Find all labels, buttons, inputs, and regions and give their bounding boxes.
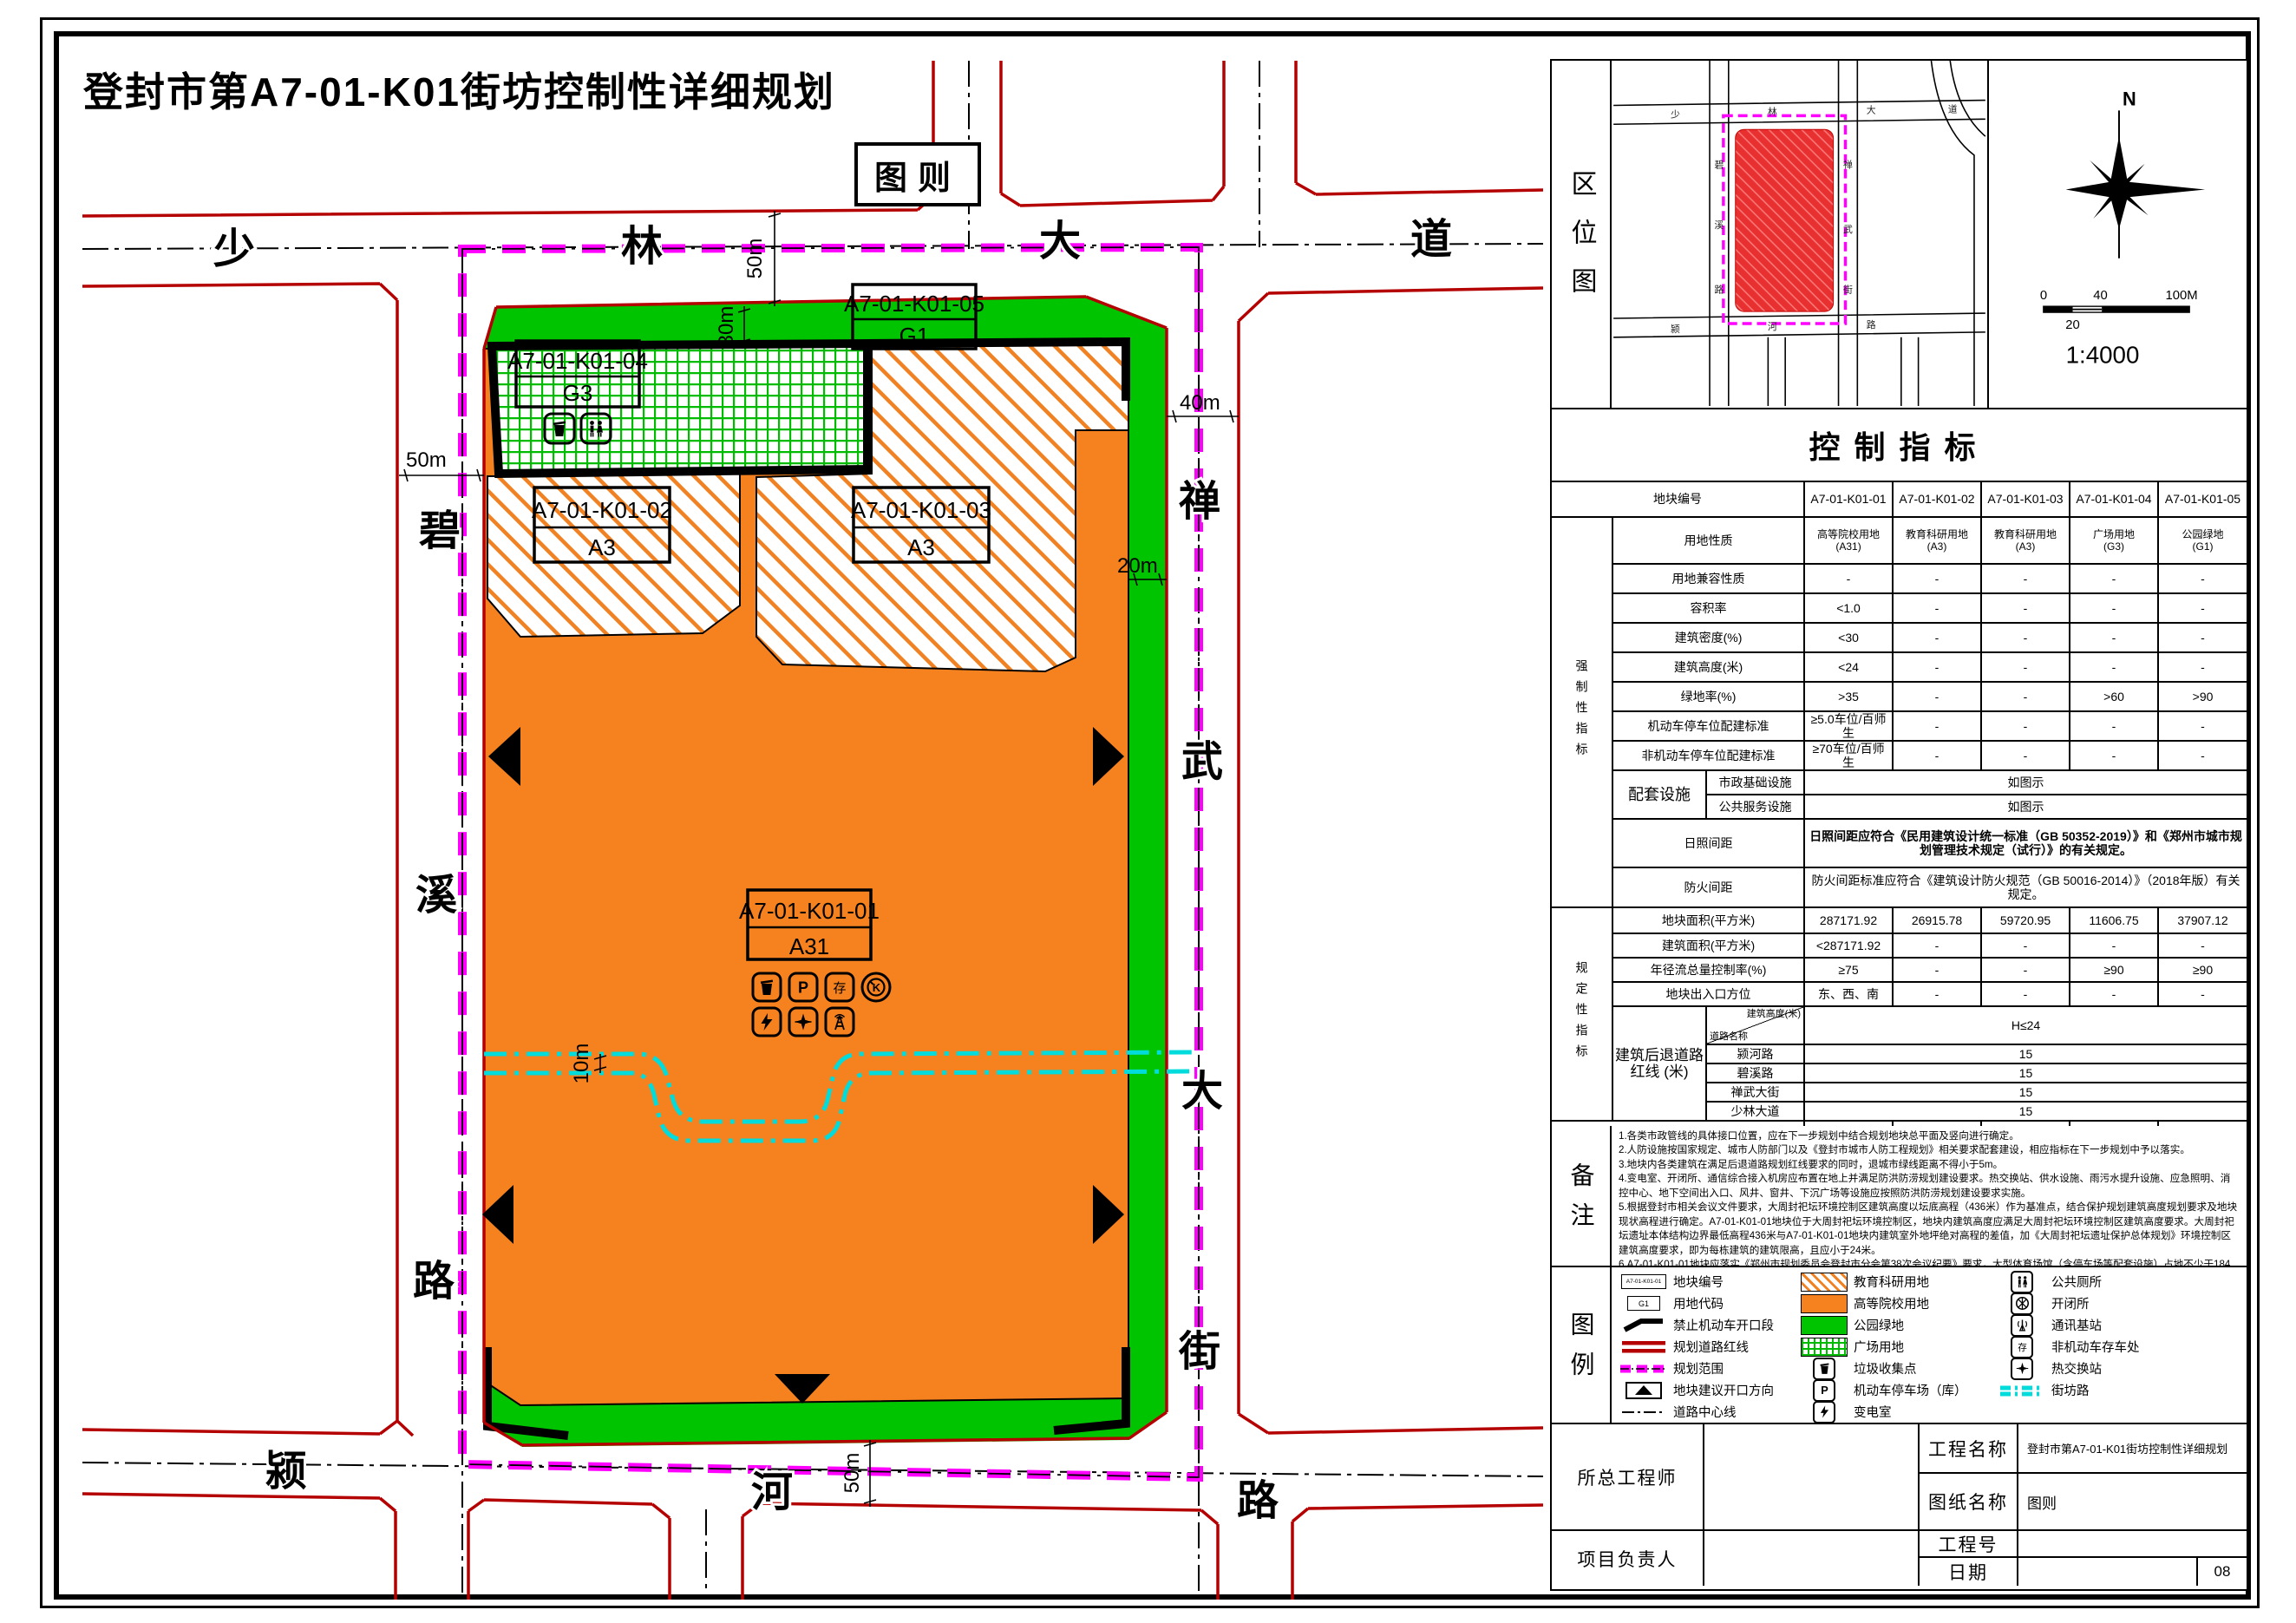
north-letter: N	[2123, 88, 2136, 109]
park-land-swatch	[1801, 1316, 1848, 1335]
legend-centerline: 道路中心线	[1620, 1401, 1801, 1423]
plot-code: A7-01-K01-01	[1804, 482, 1893, 517]
switch-station-icon	[2011, 1293, 2033, 1315]
dim-50m-top: 50m	[743, 239, 767, 279]
trash-collection-icon	[1813, 1358, 1835, 1380]
note-item: 5.根据登封市相关会议文件要求，大周封祀坛环境控制区建筑高度以坛底高程（436米…	[1619, 1201, 2240, 1258]
svg-text:溪: 溪	[1714, 219, 1724, 231]
chief-engineer-signature	[1704, 1424, 1920, 1531]
legend-heat-exchange: 热交换站	[1998, 1358, 2247, 1379]
note-item: 4.变电室、开闭所、通信综合接入机房应布置在地上并满足防洪防涝规划建设要求。热交…	[1619, 1172, 2240, 1201]
plot-04-use: G3	[563, 380, 593, 406]
svg-text:大: 大	[1867, 103, 1876, 115]
note-item: 2.人防设施按国家规定、城市人防部门以及《登封市城市人防工程规划》相关要求配套建…	[1619, 1143, 2240, 1157]
project-lead-signature	[1704, 1531, 1920, 1586]
road-north-char: 大	[1039, 219, 1081, 265]
notes-body: 1.各类市政管线的具体接口位置，应在下一步规划中结合规划地块总平面及竖向进行确定…	[1612, 1126, 2247, 1266]
group-prescriptive: 规定性指标	[1552, 907, 1612, 1121]
plaza-land-swatch	[1801, 1338, 1848, 1357]
note-item: 3.地块内各类建筑在满足后退道路规划红线要求的同时，退城市绿线距离不得小于5m。	[1619, 1158, 2240, 1172]
bike-storage-icon	[2011, 1336, 2033, 1358]
row-far: 容积率 <1.0----	[1552, 593, 2247, 623]
road-north-char: 林	[621, 224, 663, 270]
opening-dir-swatch	[1626, 1382, 1662, 1399]
chief-engineer-label: 所总工程师	[1552, 1424, 1704, 1531]
svg-text:路: 路	[1867, 319, 1876, 330]
road-south-char: 河	[751, 1469, 793, 1515]
university-land-swatch	[1801, 1294, 1848, 1313]
note-item: 1.各类市政管线的具体接口位置，应在下一步规划中结合规划地块总平面及竖向进行确定…	[1619, 1129, 2240, 1143]
location-side: N 0 40 100M 20 1:4000	[1989, 61, 2247, 408]
sheet-name-value: 图则	[2018, 1474, 2247, 1531]
row-compat: 用地兼容性质 -----	[1552, 564, 2247, 593]
svg-text:河: 河	[1768, 321, 1777, 332]
legend-col-2: 教育科研用地 高等院校用地 公园绿地 广场用地 垃圾收集点 机动车停车场（库） …	[1801, 1271, 1998, 1423]
legend-use-code: G1用地代码	[1620, 1293, 1801, 1314]
project-lead-label: 项目负责人	[1552, 1531, 1704, 1586]
location-label-text: 区位图	[1562, 170, 1600, 316]
svg-text:林: 林	[1768, 105, 1777, 117]
legend-bike-storage: 非机动车存车处	[1998, 1336, 2247, 1358]
parking-icon	[1813, 1379, 1835, 1402]
legend-toilet: 公共厕所	[1998, 1271, 2247, 1293]
row-density: 建筑密度(%) <30----	[1552, 623, 2247, 652]
scale-ratio: 1:4000	[2066, 341, 2140, 368]
legend-body: A7-01-K01-01地块编号 G1用地代码 禁止机动车开口段 规划道路红线 …	[1612, 1267, 2247, 1423]
svg-text:20: 20	[2065, 318, 2080, 332]
road-east-char: 禅	[1179, 479, 1220, 525]
plot-03-use: A3	[907, 534, 935, 560]
svg-text:武: 武	[1843, 224, 1853, 235]
legend-substation: 变电室	[1801, 1401, 1998, 1423]
location-section: 区位图	[1552, 61, 2247, 409]
legend-plaza-land: 广场用地	[1801, 1336, 1998, 1358]
setback-diagonal-header: 建筑高度(米) 道路名称	[1706, 1006, 1804, 1044]
road-west-char: 溪	[415, 873, 458, 919]
road-east-char: 街	[1178, 1329, 1220, 1375]
row-green: 绿地率(%) >35-->60>90	[1552, 682, 2247, 711]
legend-trash-point: 垃圾收集点	[1801, 1358, 1998, 1379]
title-block: 所总工程师 工程名称 登封市第A7-01-K01街坊控制性详细规划 图纸名称 图…	[1552, 1424, 2247, 1589]
sheet-tag-box: 图则	[854, 142, 981, 206]
plot-01-use: A31	[789, 933, 829, 959]
drawing-title: 登封市第A7-01-K01街坊控制性详细规划	[83, 61, 835, 118]
dim-10m-mid: 10m	[570, 1044, 593, 1084]
public-toilet-icon	[2011, 1271, 2033, 1293]
project-name-label: 工程名称	[1920, 1424, 2018, 1474]
road-east-char: 大	[1181, 1069, 1223, 1115]
use-code-swatch: G1	[1627, 1296, 1660, 1311]
road-south-char: 路	[1237, 1478, 1279, 1524]
dim-50m-west: 50m	[406, 448, 447, 472]
north-compass: N	[2066, 88, 2205, 258]
bike-storage-icon	[833, 981, 846, 996]
scope-swatch	[1620, 1363, 1667, 1375]
location-minimap: 少林大道 碧溪路 禅武街 颍河路	[1612, 61, 1989, 408]
compass-and-scale: N 0 40 100M 20 1:4000	[1989, 61, 2247, 406]
dim-50m-south: 50m	[841, 1453, 864, 1494]
row-setback-header: 建筑后退道路红线 (米) 建筑高度(米) 道路名称 H≤24	[1552, 1006, 2247, 1044]
svg-text:禅: 禅	[1843, 159, 1853, 171]
notes-section: 备注 1.各类市政管线的具体接口位置，应在下一步规划中结合规划地块总平面及竖向进…	[1552, 1126, 2247, 1267]
road-redline-swatch	[1622, 1340, 1665, 1354]
plot-05-use: G1	[899, 323, 930, 349]
dim-30m-top: 30m	[715, 306, 738, 347]
project-number-label: 工程号	[1920, 1531, 2018, 1558]
heat-exchange-icon	[2011, 1358, 2033, 1380]
row-height: 建筑高度(米) <24----	[1552, 652, 2247, 682]
plot-code: A7-01-K01-03	[1981, 482, 2070, 517]
legend-university-land: 高等院校用地	[1801, 1293, 1998, 1314]
note-item: 6.A7-01-K01-01地块应落实《郑州市规划委员会登封市分会第38次会议纪…	[1619, 1258, 2240, 1266]
project-number-value	[2018, 1531, 2247, 1558]
plot-code-header: 地块编号	[1552, 482, 1804, 517]
row-land-use: 强制性指标 用地性质 高等院校用地(A31) 教育科研用地(A3) 教育科研用地…	[1552, 517, 2247, 564]
minimap-site-block	[1736, 129, 1834, 311]
svg-text:40: 40	[2093, 289, 2108, 303]
plot-code: A7-01-K01-05	[2158, 482, 2247, 517]
legend-park-land: 公园绿地	[1801, 1314, 1998, 1336]
date-label: 日期	[1920, 1558, 2018, 1586]
plot-02-use: A3	[588, 534, 616, 560]
info-panel: 区位图	[1550, 59, 2248, 1591]
svg-text:少: 少	[1671, 108, 1680, 120]
parking-icon	[798, 979, 808, 997]
plot-03-code: A7-01-K01-03	[851, 497, 991, 523]
road-north-char: 少	[213, 226, 255, 272]
road-east-char: 武	[1181, 739, 1223, 785]
svg-text:颍: 颍	[1671, 324, 1680, 335]
dim-40m-east: 40m	[1180, 391, 1220, 415]
dim-20m-east: 20m	[1117, 554, 1158, 578]
row-bike: 非机动车停车位配建标准 ≥70车位/百师生----	[1552, 741, 2247, 770]
road-south-char: 颍	[265, 1449, 307, 1495]
svg-text:0: 0	[2040, 289, 2047, 303]
scale-bar: 0 40 100M 20	[2040, 289, 2198, 332]
row-parking: 机动车停车位配建标准 ≥5.0车位/百师生----	[1552, 711, 2247, 741]
plot-04-code: A7-01-K01-04	[507, 348, 648, 374]
location-minimap-svg: 少林大道 碧溪路 禅武街 颍河路	[1612, 61, 1987, 406]
location-section-label: 区位图	[1552, 61, 1612, 408]
svg-text:100M: 100M	[2165, 289, 2197, 303]
row-area: 规定性指标 地块面积(平方米) 287171.9226915.7859720.9…	[1552, 907, 2247, 933]
legend-col-1: A7-01-K01-01地块编号 G1用地代码 禁止机动车开口段 规划道路红线 …	[1620, 1271, 1801, 1423]
plot-02-code: A7-01-K01-02	[532, 497, 672, 523]
road-west-char: 路	[413, 1259, 455, 1305]
legend-scope: 规划范围	[1620, 1358, 1801, 1379]
plot-code: A7-01-K01-04	[2070, 482, 2158, 517]
row-fire: 防火间距 防火间距标准应符合《建筑设计防火规范（GB 50016-2014）》（…	[1552, 867, 2247, 907]
row-access: 地块出入口方位 东、西、南----	[1552, 982, 2247, 1006]
legend-road-redline: 规划道路红线	[1620, 1336, 1801, 1358]
no-opening-swatch	[1622, 1318, 1665, 1333]
research-land-swatch	[1801, 1273, 1848, 1292]
legend-research-land: 教育科研用地	[1801, 1271, 1998, 1293]
svg-text:碧: 碧	[1714, 160, 1724, 171]
telecom-base-icon	[2011, 1314, 2033, 1337]
legend-col-3: 公共厕所 开闭所 通讯基站 非机动车存车处 热交换站 街坊路	[1998, 1271, 2247, 1423]
group-mandatory: 强制性指标	[1552, 517, 1612, 907]
block-road-swatch	[2000, 1384, 2044, 1397]
legend-opening-dir: 地块建议开口方向	[1620, 1379, 1801, 1401]
svg-text:道: 道	[1948, 102, 1958, 115]
row-runoff: 年径流总量控制率(%) ≥75--≥90≥90	[1552, 958, 2247, 982]
plot-code: A7-01-K01-02	[1893, 482, 1981, 517]
plot-code-swatch: A7-01-K01-01	[1621, 1274, 1666, 1289]
substation-icon	[1813, 1401, 1835, 1423]
legend-telecom-base: 通讯基站	[1998, 1314, 2247, 1336]
sheet-name-label: 图纸名称	[1920, 1474, 2018, 1531]
row-sunlight: 日照间距 日照间距应符合《民用建筑设计统一标准（GB 50352-2019）》和…	[1552, 819, 2247, 867]
svg-text:路: 路	[1714, 284, 1724, 295]
indicators-table: 地块编号 A7-01-K01-01 A7-01-K01-02 A7-01-K01…	[1552, 482, 2247, 1126]
legend-block-road: 街坊路	[1998, 1379, 2247, 1401]
date-value: 08	[2018, 1558, 2247, 1586]
legend-section: 图例 A7-01-K01-01地块编号 G1用地代码 禁止机动车开口段 规划道路…	[1552, 1267, 2247, 1424]
legend-label: 图例	[1552, 1267, 1612, 1423]
notes-label: 备注	[1552, 1126, 1612, 1266]
legend-no-opening: 禁止机动车开口段	[1620, 1314, 1801, 1336]
legend-plot-code: A7-01-K01-01地块编号	[1620, 1271, 1801, 1293]
centerline-swatch	[1622, 1408, 1665, 1417]
page-number: 08	[2196, 1558, 2247, 1586]
row-floor-area: 建筑面积(平方米) <287171.92----	[1552, 933, 2247, 958]
svg-text:街: 街	[1843, 283, 1853, 295]
plot-01-code: A7-01-K01-01	[739, 898, 880, 924]
row-plot-codes: 地块编号 A7-01-K01-01 A7-01-K01-02 A7-01-K01…	[1552, 482, 2247, 517]
indicators-title: 控制指标	[1552, 409, 2247, 482]
indicators-table-wrap: 地块编号 A7-01-K01-01 A7-01-K01-02 A7-01-K01…	[1552, 482, 2247, 1126]
legend-parking: 机动车停车场（库）	[1801, 1379, 1998, 1401]
row-facilities-1: 配套设施 市政基础设施 如图示	[1552, 770, 2247, 795]
legend-switch-station: 开闭所	[1998, 1293, 2247, 1314]
project-name-value: 登封市第A7-01-K01街坊控制性详细规划	[2018, 1424, 2247, 1474]
plot-05-code: A7-01-K01-05	[844, 291, 984, 317]
road-west-char: 碧	[419, 508, 461, 554]
road-north-char: 道	[1410, 217, 1452, 263]
